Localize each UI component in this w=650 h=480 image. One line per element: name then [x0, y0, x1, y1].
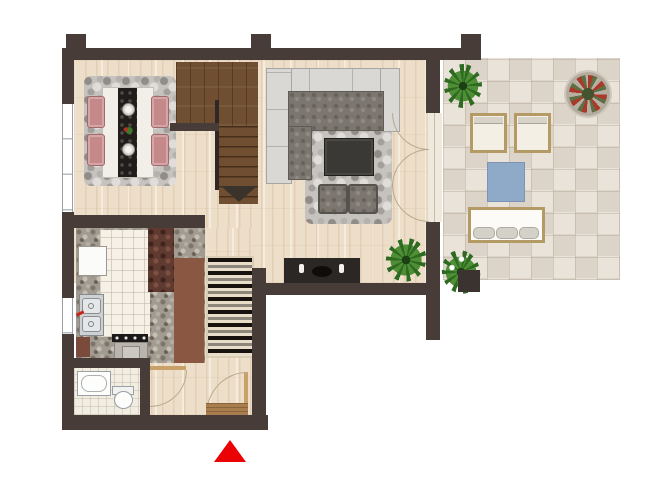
- decor-bowl: [312, 266, 332, 277]
- outdoor-bench: [468, 207, 545, 243]
- dining-chair: [87, 96, 105, 128]
- wall-under-stair: [170, 123, 219, 131]
- wave-runner-rug: [206, 256, 254, 358]
- bathroom-door-leaf: [150, 366, 186, 370]
- dining-table: [102, 87, 154, 178]
- entrance-marker: [214, 440, 246, 462]
- french-door-threshold: [428, 113, 442, 222]
- square-plant-pot: [458, 270, 480, 292]
- refrigerator: [78, 246, 107, 276]
- bench-cushion: [496, 227, 518, 239]
- kitchen-window: [62, 298, 73, 334]
- sun-lounger: [514, 113, 551, 153]
- sideboard: [284, 258, 360, 284]
- lounger-pillow: [474, 117, 503, 124]
- candle: [339, 264, 344, 273]
- kitchen-sink-unit: [79, 294, 104, 336]
- flower-centerpiece: [122, 125, 133, 135]
- floor-plan: [0, 0, 650, 480]
- sink-drain-top: [88, 303, 94, 309]
- wall-pillar: [66, 34, 86, 48]
- sofa-seat-cushions: [288, 91, 384, 131]
- wall-kitchen-divider: [62, 215, 205, 228]
- sink-drain-bottom: [88, 321, 94, 327]
- kitchen-side-cabinet: [76, 337, 90, 357]
- wall-right-lower: [426, 222, 440, 340]
- wall-left-upper: [62, 48, 74, 104]
- dining-chair: [87, 134, 105, 166]
- dining-chair: [151, 96, 169, 128]
- plate: [122, 143, 135, 156]
- dining-chair: [151, 134, 169, 166]
- round-flower-planter: [566, 72, 610, 116]
- bathtub: [77, 371, 111, 396]
- wall-bathroom-top: [62, 358, 150, 368]
- dining-window: [62, 104, 73, 212]
- palm-plant: [444, 64, 482, 108]
- kitchen-cabinet-tall: [174, 258, 204, 363]
- stair-direction-arrow: [221, 186, 257, 202]
- sofa-chaise-cushion: [288, 126, 312, 180]
- ottoman: [318, 184, 348, 214]
- wall-pillar: [461, 34, 481, 48]
- wall-bathroom-right: [140, 368, 150, 415]
- bench-cushion: [473, 227, 495, 239]
- plate: [122, 103, 135, 116]
- bathtub-basin: [81, 375, 107, 392]
- wall-bottom: [62, 415, 268, 430]
- ottoman: [348, 184, 378, 214]
- wall-pillar: [251, 34, 271, 48]
- kitchen-floor-tiles: [100, 230, 150, 337]
- blue-outdoor-mat: [487, 162, 525, 202]
- sun-lounger: [470, 113, 507, 153]
- candle: [299, 264, 304, 273]
- toilet-bowl: [114, 391, 133, 409]
- lounger-pillow: [518, 117, 547, 124]
- coffee-table: [324, 138, 374, 176]
- bench-cushion: [519, 227, 539, 239]
- stair-divider-rail: [215, 100, 219, 190]
- wall-living-bottom: [264, 283, 428, 295]
- kitchen-cabinet-upper: [148, 228, 174, 292]
- wall-top: [62, 48, 481, 60]
- cooktop: [112, 334, 148, 342]
- wall-right-upper: [426, 48, 440, 113]
